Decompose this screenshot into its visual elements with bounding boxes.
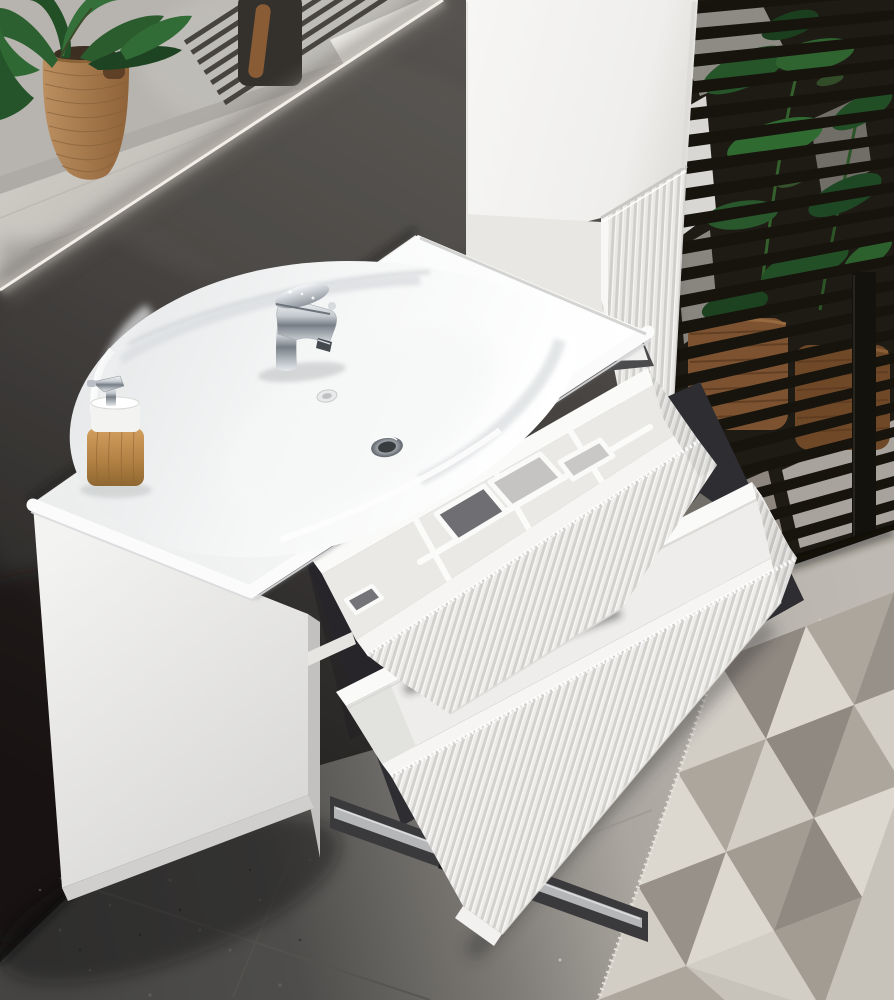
lever-tip bbox=[328, 302, 336, 310]
pump-spout bbox=[87, 380, 96, 387]
bathroom-vanity-scene bbox=[0, 0, 894, 1000]
scene-svg bbox=[0, 0, 894, 1000]
dispenser-wood-body bbox=[87, 428, 144, 486]
divider-post bbox=[852, 272, 876, 542]
